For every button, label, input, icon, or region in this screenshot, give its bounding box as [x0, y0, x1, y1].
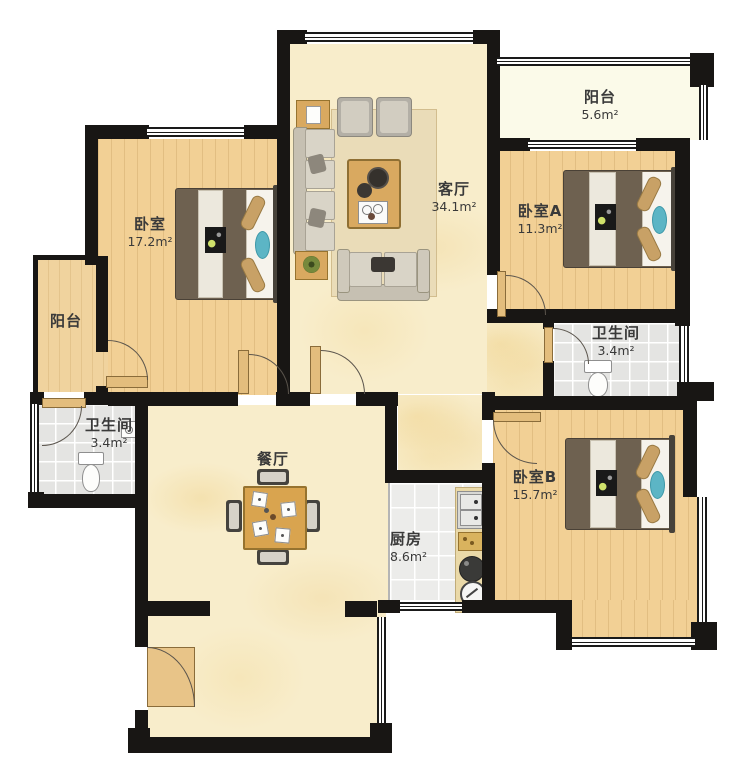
wall [85, 125, 98, 265]
door-leaf [310, 346, 321, 394]
floor-hall-alcove [487, 323, 545, 396]
wall [135, 610, 148, 647]
kitchen-threshold [388, 483, 390, 600]
window [305, 32, 475, 42]
washbasin [121, 421, 136, 438]
wall [487, 30, 500, 142]
exterior-mask [386, 613, 400, 740]
wall [690, 53, 714, 87]
wall [385, 392, 397, 476]
wall [277, 30, 290, 395]
window-slider [528, 140, 636, 149]
wall [30, 494, 138, 508]
window-railing [497, 57, 693, 66]
wall [543, 361, 554, 398]
wall [556, 611, 572, 650]
sofa-loveseat [337, 249, 430, 301]
wall [378, 600, 400, 613]
wall [96, 256, 108, 352]
coffee-table [347, 159, 401, 229]
toilet-right [584, 360, 610, 396]
wall [675, 138, 690, 326]
wall [33, 255, 38, 395]
kitchen-sink [457, 491, 485, 529]
book [306, 106, 321, 124]
wall [482, 463, 495, 603]
window [697, 497, 707, 625]
tray [358, 201, 388, 224]
wall [135, 392, 148, 610]
door-leaf [238, 350, 249, 394]
wall [493, 396, 685, 410]
ottoman-2 [376, 97, 412, 137]
door-leaf [497, 271, 506, 317]
window [699, 85, 708, 140]
dining-chair-south [257, 549, 289, 565]
wall [276, 392, 310, 406]
floor-corridor [398, 395, 482, 470]
wall [385, 470, 488, 483]
bed-bedroom-a [563, 170, 675, 268]
wall [84, 392, 108, 405]
toilet-left [78, 452, 102, 492]
dining-table [243, 486, 307, 550]
door-leaf [544, 327, 553, 363]
wall [345, 601, 377, 617]
window [30, 404, 39, 494]
window [572, 637, 695, 647]
bed-bedroom-b [565, 438, 673, 530]
dining-chair-west [226, 500, 242, 532]
window [679, 326, 689, 382]
side-table-nw [296, 100, 330, 129]
sofa-long [293, 127, 338, 255]
wall [148, 601, 210, 616]
cushion-dark [371, 257, 395, 272]
wall [130, 737, 392, 753]
bed-bedroom-main [175, 188, 277, 300]
window [400, 602, 462, 611]
wall [487, 142, 500, 275]
window [147, 127, 246, 137]
floor-plan-canvas: 卧室 17.2m² 客厅 34.1m² 卧室A 11.3m² 阳台 5.6m² … [0, 0, 750, 763]
plant [303, 256, 320, 273]
wall [108, 392, 238, 406]
dining-chair-north [257, 469, 289, 485]
floor-balcony-top [497, 64, 699, 140]
floor-bedroom-b-bay [556, 600, 697, 637]
side-table-sw [295, 251, 328, 280]
ottoman-1 [337, 97, 373, 137]
window [377, 617, 386, 737]
wall [683, 400, 697, 497]
cutting-board [458, 532, 483, 551]
wall [33, 255, 98, 260]
